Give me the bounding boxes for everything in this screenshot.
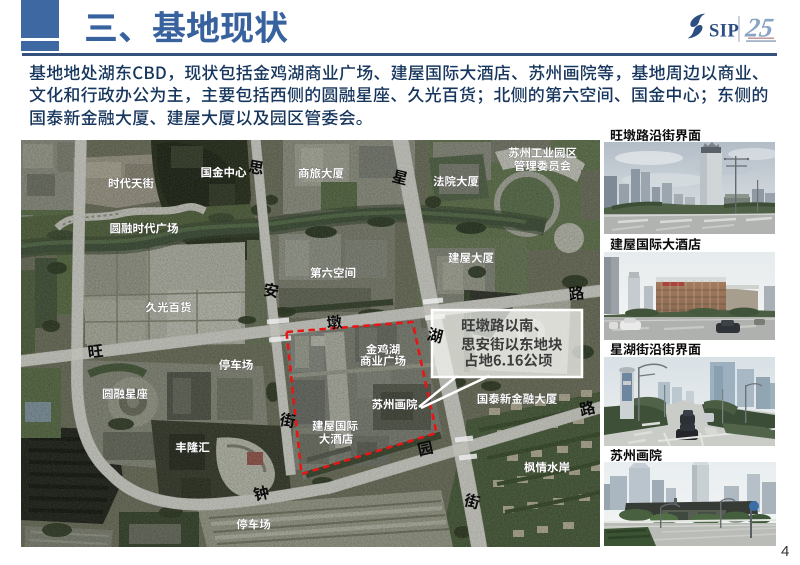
svg-text:旺: 旺: [86, 339, 104, 363]
svg-text:法院大厦: 法院大厦: [433, 174, 479, 190]
svg-text:SIP: SIP: [709, 22, 739, 42]
svg-text:圆融时代广场: 圆融时代广场: [110, 221, 179, 237]
svg-text:停车场: 停车场: [236, 517, 271, 533]
svg-text:丰隆汇: 丰隆汇: [175, 440, 210, 456]
svg-text:苏州画院: 苏州画院: [372, 397, 418, 413]
svg-text:国泰新金融大厦: 国泰新金融大厦: [477, 391, 558, 407]
svg-text:旺墩路以南、: 旺墩路以南、: [461, 315, 548, 336]
svg-text:占地6.16公顷: 占地6.16公顷: [464, 350, 553, 371]
svg-text:久光百货: 久光百货: [146, 300, 192, 316]
svg-text:商业广场: 商业广场: [360, 353, 406, 369]
svg-text:枫情水岸: 枫情水岸: [524, 460, 570, 476]
svg-text:国金中心: 国金中心: [201, 165, 247, 181]
svg-text:时代天街: 时代天街: [108, 176, 154, 192]
svg-text:停车场: 停车场: [219, 357, 254, 373]
svg-text:建屋大厦: 建屋大厦: [448, 250, 494, 266]
svg-text:大酒店: 大酒店: [319, 431, 354, 447]
svg-text:第六空间: 第六空间: [310, 265, 356, 281]
svg-text:墩: 墩: [325, 310, 344, 334]
svg-text:商旅大厦: 商旅大厦: [298, 166, 344, 182]
svg-text:圆融星座: 圆融星座: [102, 386, 148, 402]
svg-text:路: 路: [567, 281, 586, 305]
svg-text:管理委员会: 管理委员会: [514, 158, 572, 174]
